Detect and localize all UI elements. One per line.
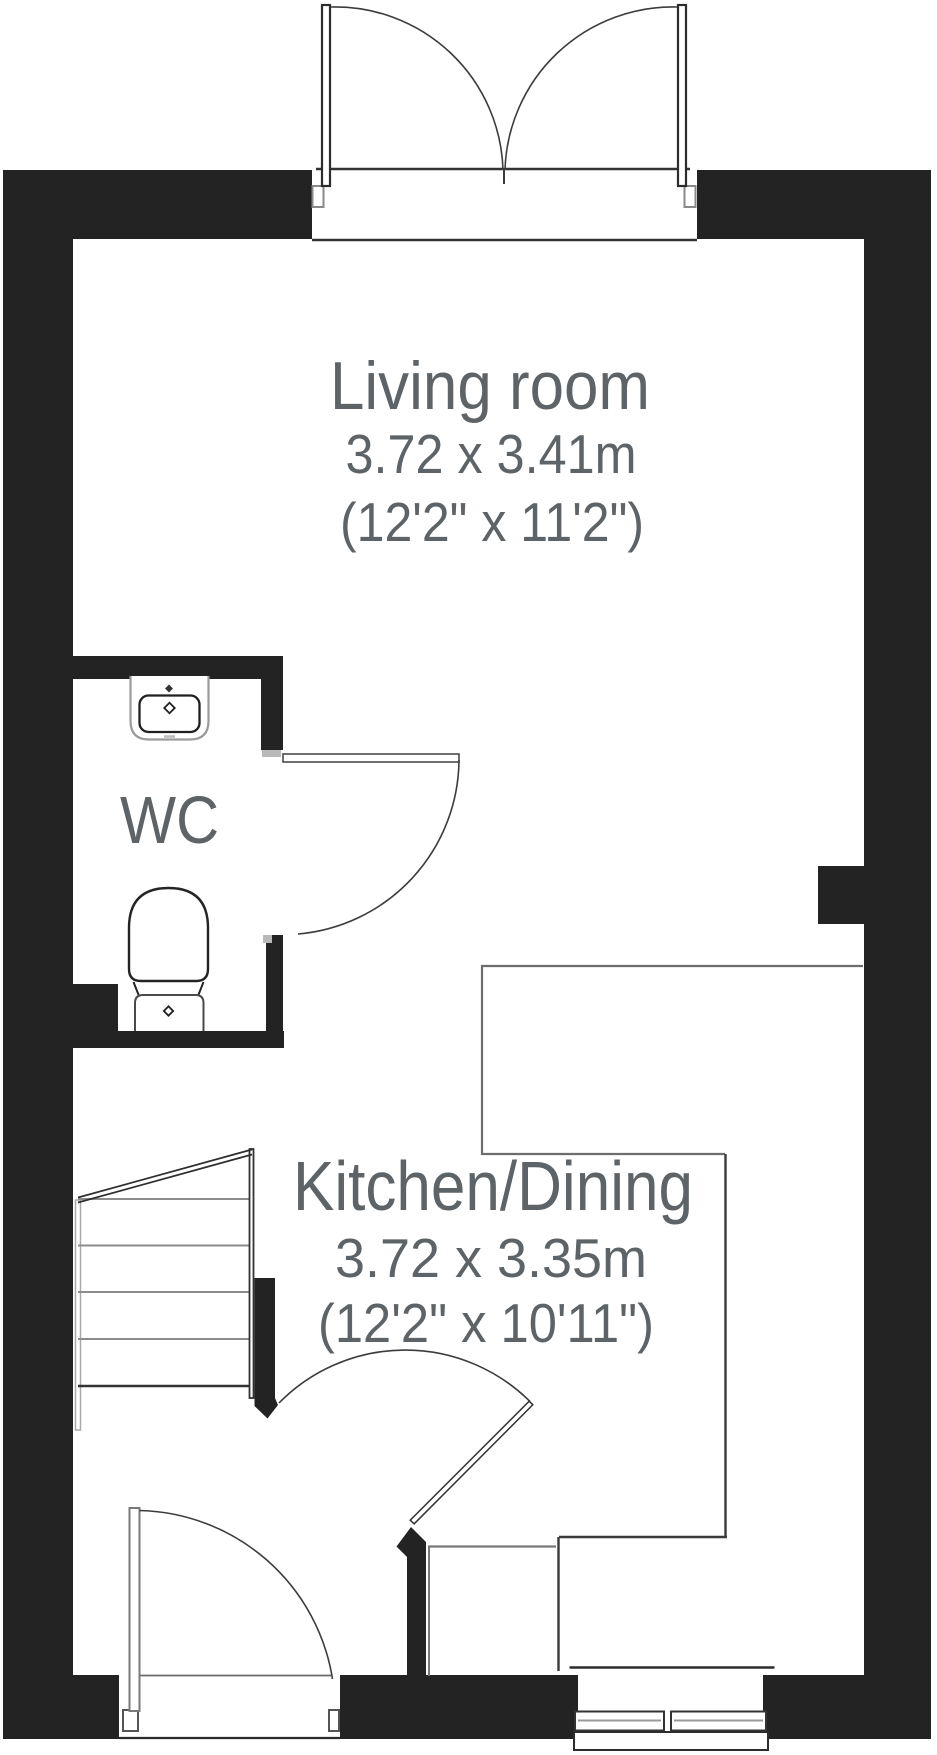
svg-text:(12'2" x 10'11"): (12'2" x 10'11"): [318, 1292, 654, 1354]
svg-text:Kitchen/Dining: Kitchen/Dining: [293, 1147, 693, 1225]
svg-text:3.72 x 3.35m: 3.72 x 3.35m: [335, 1227, 647, 1289]
svg-text:(12'2" x 11'2"): (12'2" x 11'2"): [340, 491, 644, 553]
svg-text:Living room: Living room: [330, 348, 650, 424]
svg-text:3.72 x 3.41m: 3.72 x 3.41m: [346, 423, 637, 485]
svg-text:WC: WC: [120, 783, 219, 858]
